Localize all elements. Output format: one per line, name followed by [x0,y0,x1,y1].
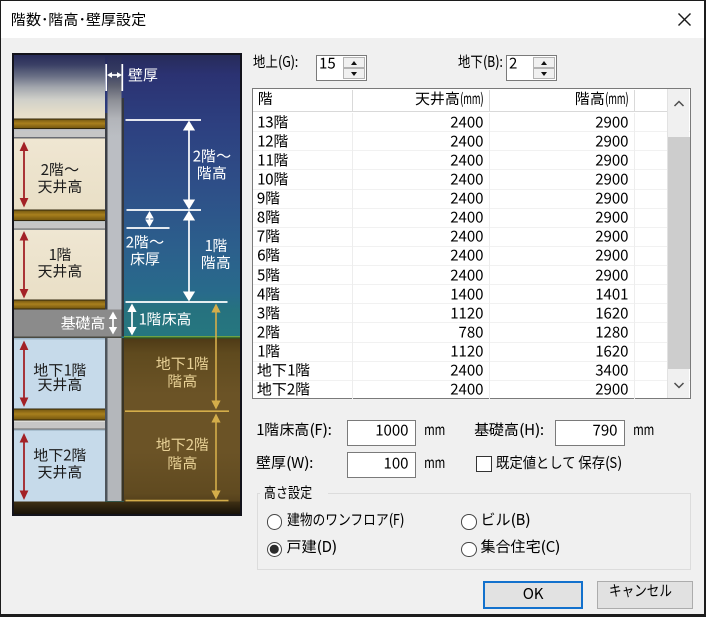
svg-text:天井高: 天井高 [37,260,82,281]
svg-text:階高: 階高 [197,162,227,183]
svg-text:天井高: 天井高 [37,176,82,197]
svg-text:壁厚: 壁厚 [128,65,158,86]
svg-text:1階床高: 1階床高 [138,308,191,329]
svg-text:基礎高: 基礎高 [60,312,105,333]
svg-text:階高: 階高 [167,370,197,391]
svg-text:階高: 階高 [167,453,197,474]
svg-text:天井高: 天井高 [37,461,82,482]
svg-text:階高: 階高 [201,252,231,273]
svg-text:地下2階: 地下2階 [156,434,209,455]
svg-text:天井高: 天井高 [37,374,82,395]
svg-text:床厚: 床厚 [130,248,160,269]
